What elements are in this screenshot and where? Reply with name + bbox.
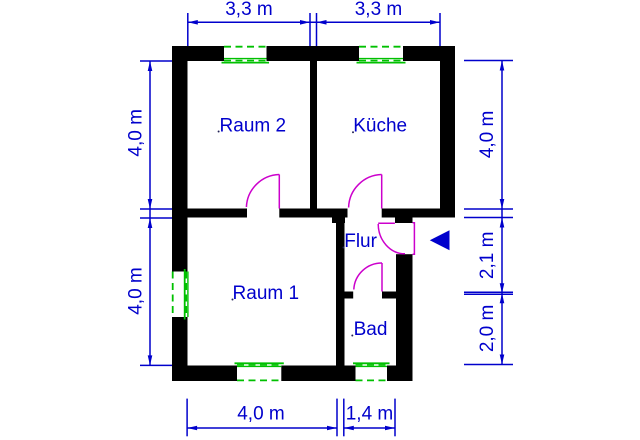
svg-text:4,0 m: 4,0 m (477, 111, 498, 159)
svg-text:4,0 m: 4,0 m (125, 267, 146, 315)
svg-text:Raum 1: Raum 1 (233, 283, 300, 304)
svg-text:4,0 m: 4,0 m (237, 404, 285, 425)
svg-text:Bad: Bad (354, 319, 388, 340)
svg-text:2,0 m: 2,0 m (477, 305, 498, 353)
svg-text:Flur: Flur (344, 231, 377, 252)
svg-text:4,0 m: 4,0 m (125, 109, 146, 157)
svg-text:Raum 2: Raum 2 (220, 115, 287, 136)
svg-text:1,4 m: 1,4 m (346, 404, 394, 425)
svg-text:3,3 m: 3,3 m (355, 0, 403, 20)
svg-text:2,1 m: 2,1 m (477, 232, 498, 280)
svg-text:Küche: Küche (353, 116, 407, 137)
svg-text:3,3 m: 3,3 m (225, 0, 273, 20)
